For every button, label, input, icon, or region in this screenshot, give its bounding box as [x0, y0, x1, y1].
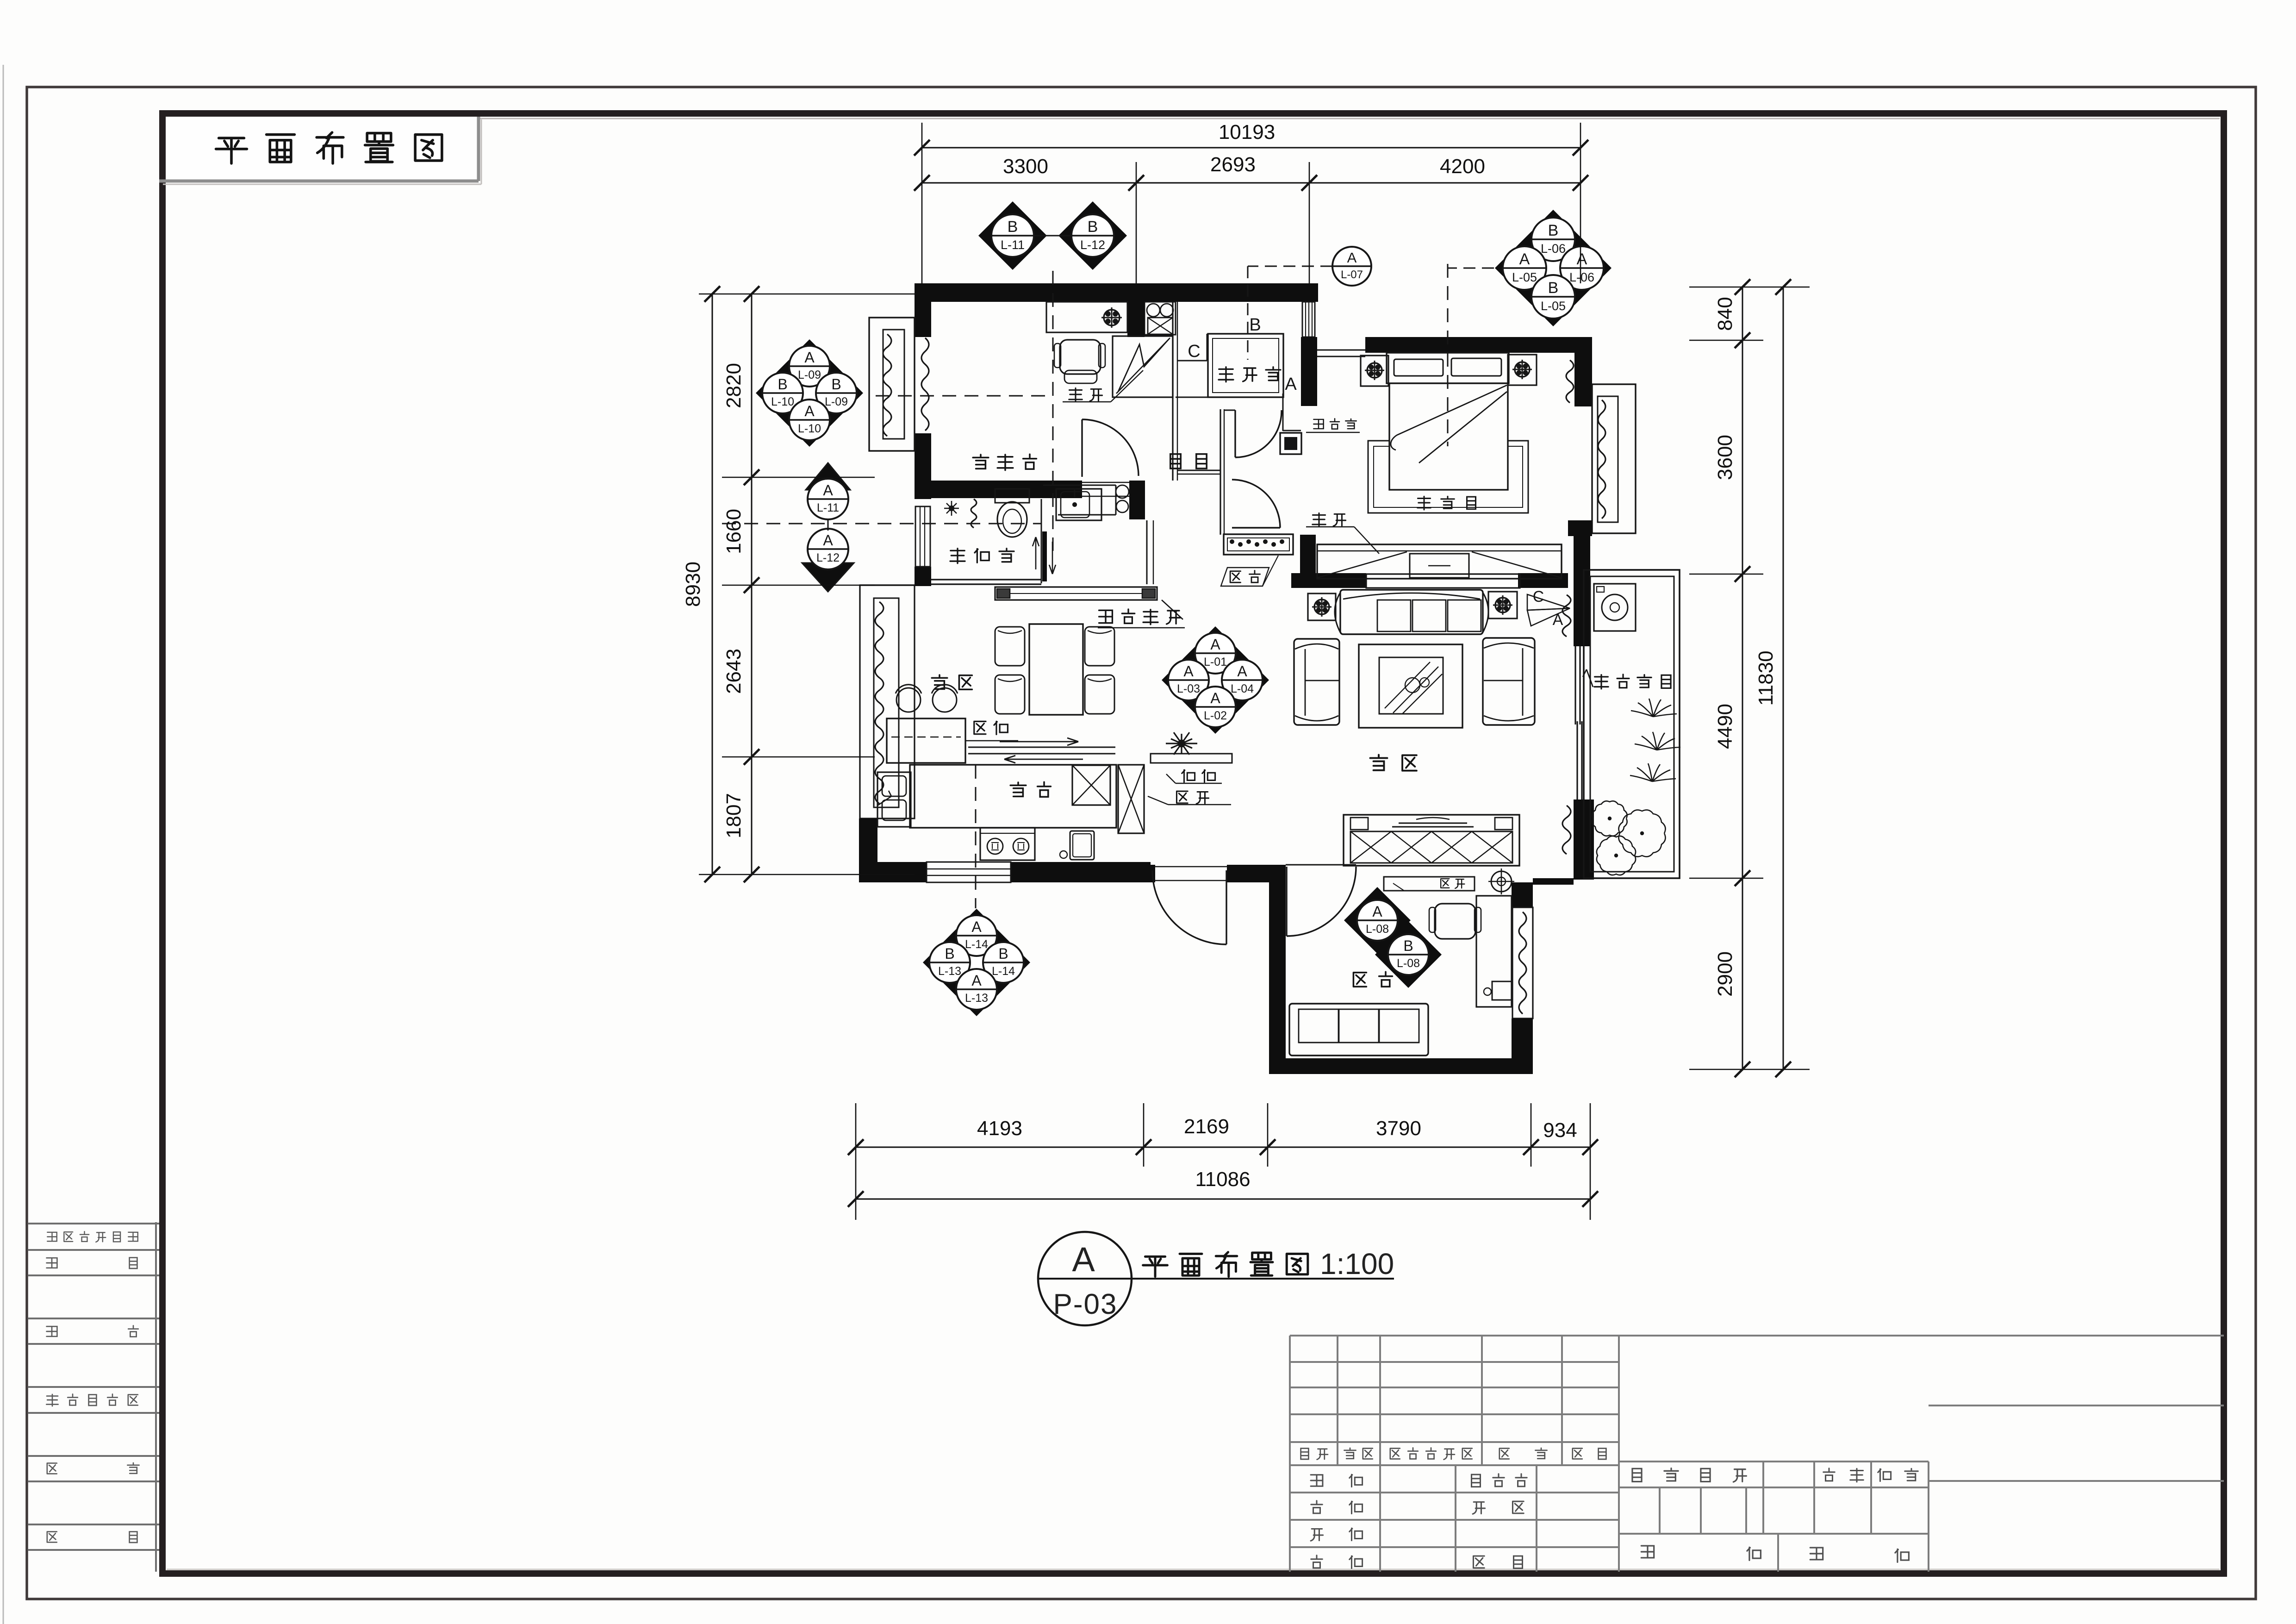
svg-text:A: A [1553, 611, 1563, 629]
svg-text:L-05: L-05 [1512, 270, 1537, 284]
svg-text:L-06: L-06 [1569, 270, 1594, 284]
svg-text:B: B [1403, 937, 1413, 954]
svg-text:934: 934 [1543, 1119, 1577, 1142]
svg-text:B: B [831, 376, 841, 393]
svg-text:2693: 2693 [1210, 153, 1256, 176]
svg-text:8930: 8930 [682, 562, 704, 607]
svg-text:A: A [1577, 250, 1587, 268]
svg-text:A: A [1237, 663, 1247, 680]
svg-text:3790: 3790 [1376, 1117, 1421, 1140]
svg-text:L-03: L-03 [1177, 682, 1200, 695]
svg-text:A: A [804, 349, 815, 366]
svg-text:L-04: L-04 [1231, 682, 1254, 695]
svg-text:L-10: L-10 [798, 422, 821, 435]
svg-text:L-14: L-14 [992, 965, 1015, 978]
svg-text:L-14: L-14 [965, 938, 988, 951]
svg-text:1660: 1660 [722, 509, 745, 554]
svg-text:A: A [804, 403, 815, 419]
svg-text:B: B [1249, 315, 1261, 335]
svg-text:L-07: L-07 [1341, 269, 1363, 281]
svg-text:L-08: L-08 [1397, 957, 1420, 970]
svg-text:B: B [1548, 222, 1559, 239]
svg-text:1807: 1807 [722, 793, 745, 838]
svg-text:2169: 2169 [1184, 1115, 1229, 1138]
svg-text:L-11: L-11 [1001, 238, 1025, 252]
svg-text:4490: 4490 [1714, 704, 1736, 749]
svg-text:L-10: L-10 [771, 395, 794, 408]
svg-text:A: A [1285, 375, 1297, 394]
svg-text:L-11: L-11 [817, 501, 839, 514]
svg-text:L-09: L-09 [798, 369, 821, 381]
svg-text:2643: 2643 [722, 649, 745, 694]
svg-text:B: B [945, 945, 954, 962]
svg-text:B: B [1548, 279, 1559, 297]
svg-text:1:100: 1:100 [1320, 1247, 1394, 1280]
svg-text:11086: 11086 [1195, 1168, 1250, 1191]
svg-text:11830: 11830 [1755, 650, 1777, 706]
svg-text:L-13: L-13 [938, 965, 961, 978]
svg-text:C: C [1188, 342, 1200, 361]
svg-text:840: 840 [1714, 297, 1736, 331]
svg-text:A: A [1210, 636, 1220, 653]
svg-text:A: A [1372, 903, 1382, 920]
svg-text:A: A [971, 972, 982, 989]
svg-text:A: A [1072, 1240, 1095, 1279]
svg-text:B: B [778, 376, 787, 393]
svg-text:C: C [1533, 588, 1544, 606]
svg-text:2820: 2820 [722, 363, 745, 408]
svg-text:A: A [1519, 250, 1530, 268]
svg-text:L-06: L-06 [1541, 242, 1566, 256]
svg-text:A: A [1183, 663, 1194, 680]
svg-text:L-02: L-02 [1204, 709, 1227, 722]
svg-text:4200: 4200 [1440, 155, 1485, 178]
svg-text:A: A [1210, 690, 1220, 706]
svg-text:L-13: L-13 [965, 992, 988, 1005]
svg-text:L-01: L-01 [1204, 656, 1227, 668]
svg-text:2900: 2900 [1714, 951, 1736, 997]
svg-text:4193: 4193 [977, 1117, 1022, 1140]
svg-text:3600: 3600 [1714, 435, 1736, 480]
svg-text:B: B [1088, 218, 1098, 236]
svg-text:10193: 10193 [1219, 121, 1275, 144]
svg-text:P-03: P-03 [1053, 1288, 1118, 1320]
svg-text:L-05: L-05 [1541, 299, 1566, 313]
svg-text:B: B [1008, 218, 1018, 236]
svg-text:A: A [1347, 250, 1357, 266]
svg-text:L-12: L-12 [816, 551, 840, 564]
svg-text:A: A [823, 532, 833, 549]
svg-text:3300: 3300 [1003, 155, 1048, 178]
svg-text:L-12: L-12 [1080, 238, 1105, 252]
svg-text:B: B [998, 945, 1008, 962]
svg-text:A: A [823, 482, 833, 499]
svg-text:L-08: L-08 [1366, 923, 1389, 936]
svg-text:L-09: L-09 [825, 395, 848, 408]
svg-text:A: A [971, 918, 982, 935]
